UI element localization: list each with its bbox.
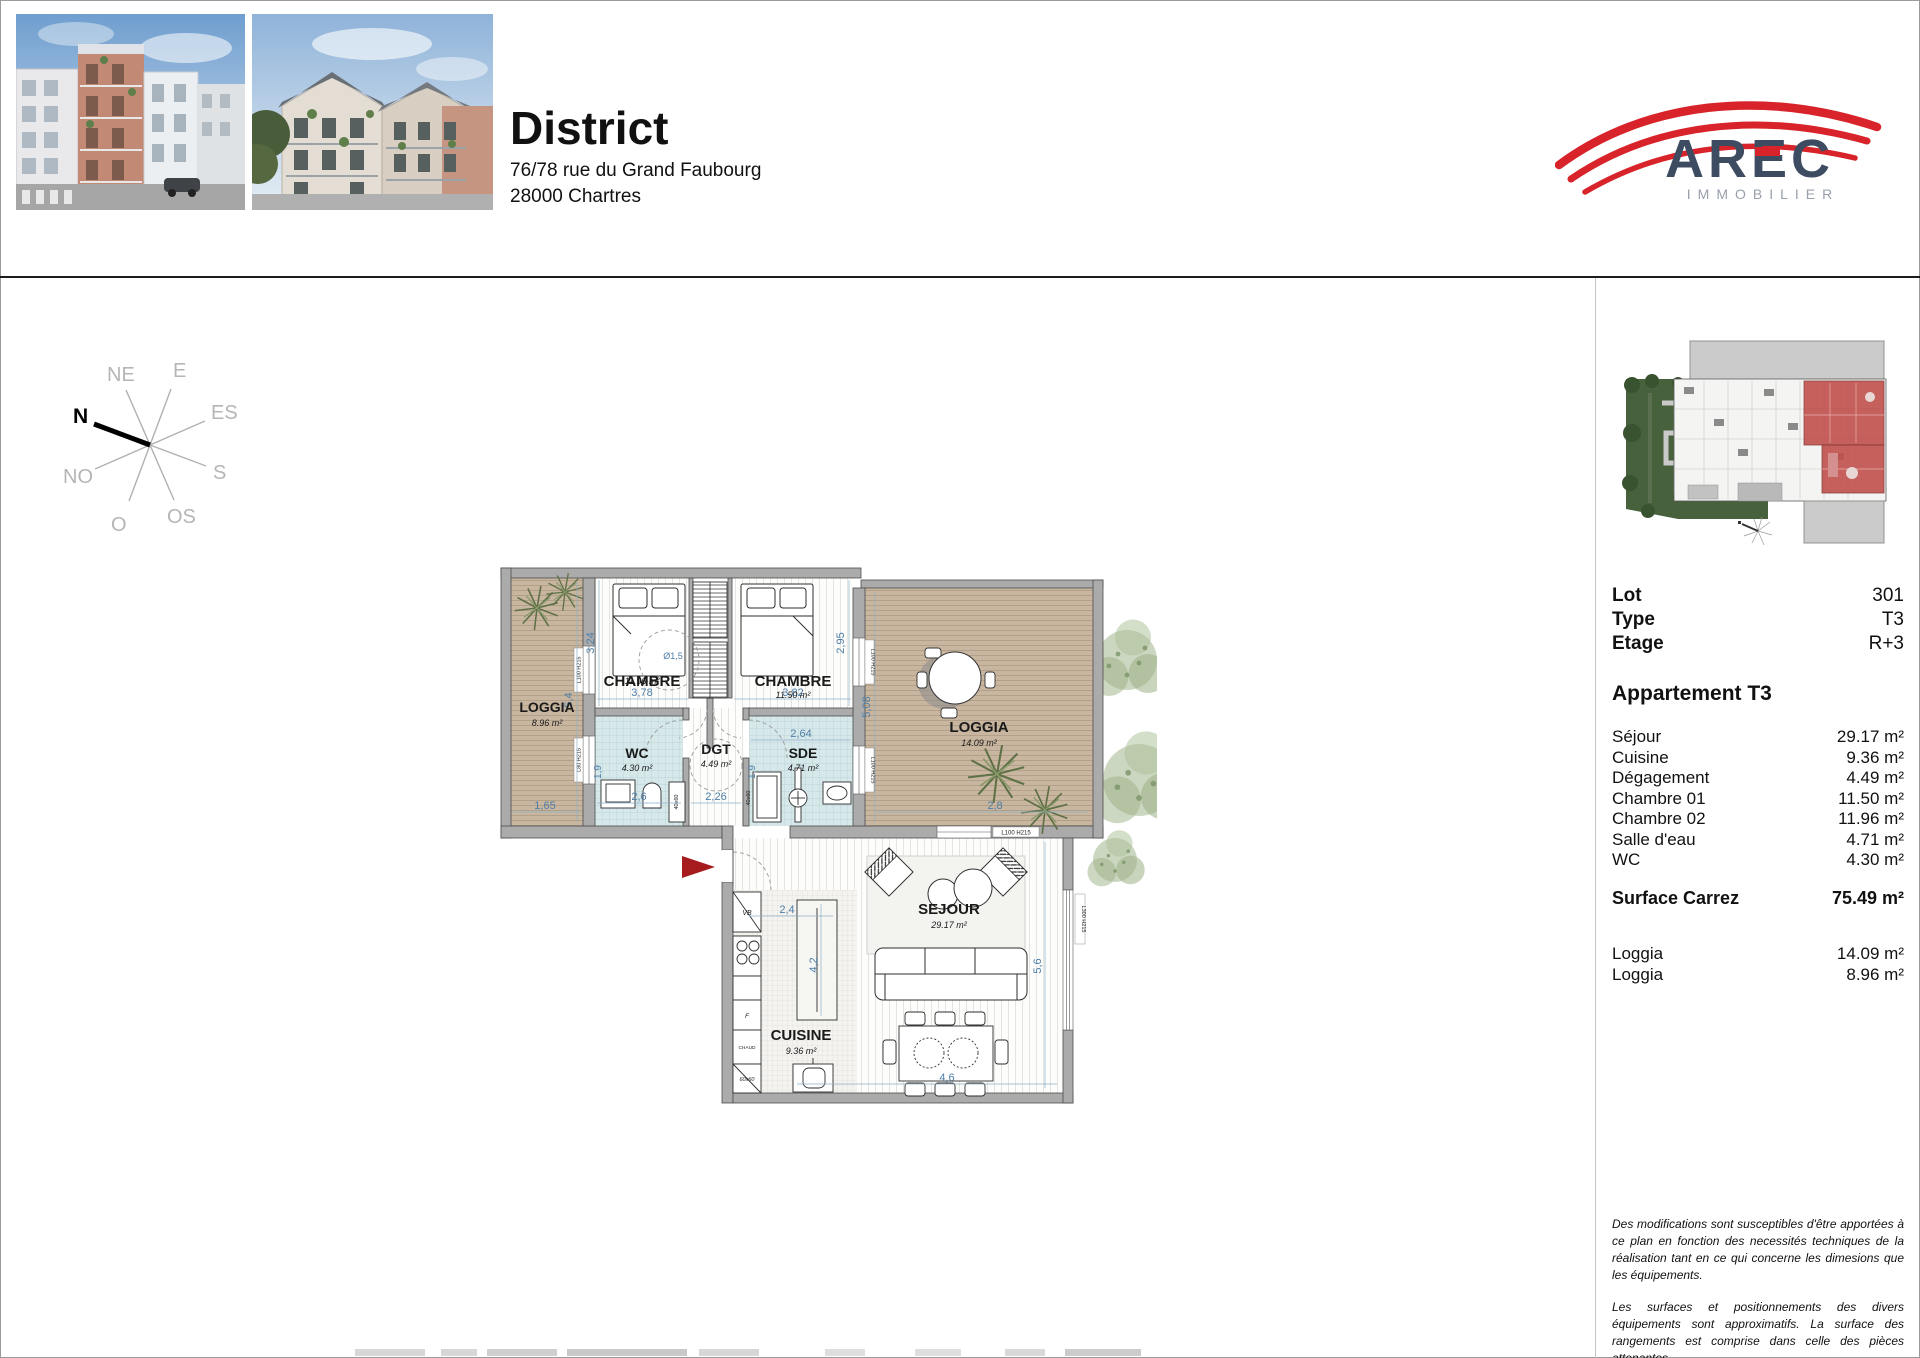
compass-es: ES — [211, 402, 238, 424]
wardrobes — [693, 582, 727, 698]
window-label: L100 H215 — [577, 657, 583, 684]
compass-os: OS — [167, 506, 196, 528]
room-area: 11.50 m² — [776, 690, 812, 700]
fixture-label: 60x60 — [740, 1077, 756, 1083]
etage-label: Etage — [1612, 632, 1664, 656]
room-row: WC4.30 m² — [1612, 850, 1904, 871]
footer-logo-strip — [355, 1349, 1141, 1357]
lot-label: Lot — [1612, 584, 1642, 608]
loggia-row: Loggia14.09 m² — [1612, 944, 1904, 965]
dim: 1,9 — [593, 765, 604, 779]
dim: 4,2 — [808, 957, 820, 972]
lot-info: Lot301 TypeT3 EtageR+3 — [1612, 584, 1904, 656]
window-label: L100 H215 — [1001, 831, 1031, 837]
surface-value: 75.49 m² — [1832, 888, 1904, 909]
room-area: 4.71 m² — [788, 763, 820, 773]
dim: 2,95 — [835, 632, 847, 653]
type-label: Type — [1612, 608, 1655, 632]
project-address-line2: 28000 Chartres — [510, 184, 1070, 210]
type-value: T3 — [1882, 608, 1904, 632]
window-label: L100 H215 — [870, 757, 876, 784]
sofa — [875, 948, 1027, 1000]
room-row: Chambre 0211.96 m² — [1612, 809, 1904, 830]
room-area: 29.17 m² — [930, 920, 968, 930]
etage-value: R+3 — [1869, 632, 1904, 656]
loggia-right-floor — [865, 588, 1093, 826]
fixture-label: 40x60 — [746, 791, 752, 806]
site-plan-thumbnail — [1618, 333, 1910, 563]
compass-o: O — [111, 514, 127, 535]
lot-value: 301 — [1872, 584, 1904, 608]
room-name: LOGGIA — [949, 719, 1008, 736]
dim: Ø1,5 — [663, 651, 683, 661]
dim: 2,6 — [631, 791, 646, 803]
logo-e-bar — [1755, 147, 1780, 156]
dim: 2,26 — [705, 791, 726, 803]
dim: 1,9 — [747, 765, 758, 779]
fixture-label: 40x60 — [674, 795, 680, 810]
loggia-areas-list: Loggia14.09 m² Loggia8.96 m² — [1612, 944, 1904, 985]
compass-n: N — [73, 405, 88, 428]
compass-ne: NE — [107, 364, 135, 386]
project-title: District — [510, 104, 1070, 152]
dim: 2,4 — [779, 904, 794, 916]
loggia-row: Loggia8.96 m² — [1612, 965, 1904, 986]
room-name: DGT — [701, 741, 731, 757]
arec-logo: AREC IMMOBILIER — [1555, 75, 1895, 215]
floorplan-sheet: District 76/78 rue du Grand Faubourg 280… — [0, 0, 1920, 1358]
room-area: 4.30 m² — [622, 763, 654, 773]
dim: 4,6 — [939, 1072, 954, 1084]
apartment-floor-plan: L100 H215 L80 H215 L100 H215 L100 H215 L… — [497, 560, 1157, 1125]
dim: 5,6 — [1032, 958, 1044, 973]
entry-arrow-icon — [682, 856, 715, 878]
entry-door-gap — [722, 850, 733, 882]
dim: 5,08 — [861, 696, 873, 717]
dim: 3,24 — [585, 632, 597, 653]
room-area: 14.09 m² — [961, 738, 998, 748]
room-area: 4.49 m² — [701, 759, 733, 769]
room-name: SEJOUR — [918, 901, 980, 918]
building-photo-1 — [16, 14, 245, 210]
room-row: Séjour29.17 m² — [1612, 727, 1904, 748]
room-areas-list: Séjour29.17 m² Cuisine9.36 m² Dégagement… — [1612, 727, 1904, 871]
dim: 2,64 — [790, 728, 811, 740]
room-row: Dégagement4.49 m² — [1612, 768, 1904, 789]
window-label: L80 H215 — [577, 748, 583, 772]
compass-e: E — [173, 360, 186, 382]
room-row: Salle d'eau4.71 m² — [1612, 830, 1904, 851]
dim: 1,65 — [534, 800, 555, 812]
room-name: SDE — [789, 745, 818, 761]
apartment-title: Appartement T3 — [1612, 682, 1904, 706]
building-photo-2 — [252, 14, 493, 210]
project-title-block: District 76/78 rue du Grand Faubourg 280… — [510, 104, 1070, 210]
room-area: 8.96 m² — [532, 718, 564, 728]
room-name: CUISINE — [771, 1027, 832, 1044]
window-label: L100 H215 — [870, 649, 876, 676]
header-divider — [0, 276, 1920, 278]
surface-label: Surface Carrez — [1612, 888, 1739, 909]
room-name: CHAMBRE — [755, 673, 832, 690]
sidebar-divider — [1595, 278, 1596, 1358]
disclaimer-paragraph-2: Les surfaces et positionnements des dive… — [1612, 1299, 1904, 1358]
fixture-label: CHAUD — [738, 1045, 756, 1051]
room-row: Cuisine9.36 m² — [1612, 748, 1904, 769]
logo-subtitle: IMMOBILIER — [1687, 186, 1839, 202]
room-row: Chambre 0111.50 m² — [1612, 789, 1904, 810]
project-address-line1: 76/78 rue du Grand Faubourg — [510, 158, 1070, 184]
dim: 2,8 — [987, 800, 1002, 812]
site-compass-icon — [1738, 517, 1772, 545]
compass-no: NO — [63, 466, 93, 488]
room-area: 11.96 m² — [625, 676, 661, 686]
logo-wordmark: AREC — [1665, 129, 1834, 189]
disclaimer-paragraph-1: Des modifications sont susceptibles d'êt… — [1612, 1216, 1904, 1284]
legal-disclaimer: Des modifications sont susceptibles d'êt… — [1612, 1216, 1904, 1358]
bed-chambre2 — [613, 584, 685, 676]
compass-s: S — [213, 462, 226, 484]
surface-carrez-row: Surface Carrez 75.49 m² — [1612, 888, 1904, 909]
bed-chambre1 — [741, 584, 813, 676]
room-name: WC — [625, 745, 648, 761]
window-label: L300 H215 — [1080, 906, 1086, 933]
compass-rose: N NE E ES S OS O NO — [45, 285, 275, 540]
room-area: 9.36 m² — [786, 1046, 818, 1056]
room-name: LOGGIA — [519, 699, 574, 715]
